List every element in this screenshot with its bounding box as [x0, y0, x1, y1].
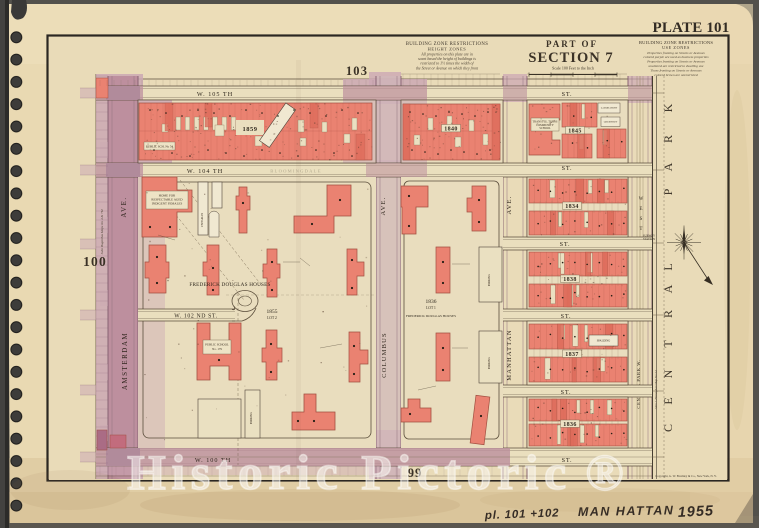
svg-text:PLATE 101: PLATE 101 — [653, 20, 730, 36]
